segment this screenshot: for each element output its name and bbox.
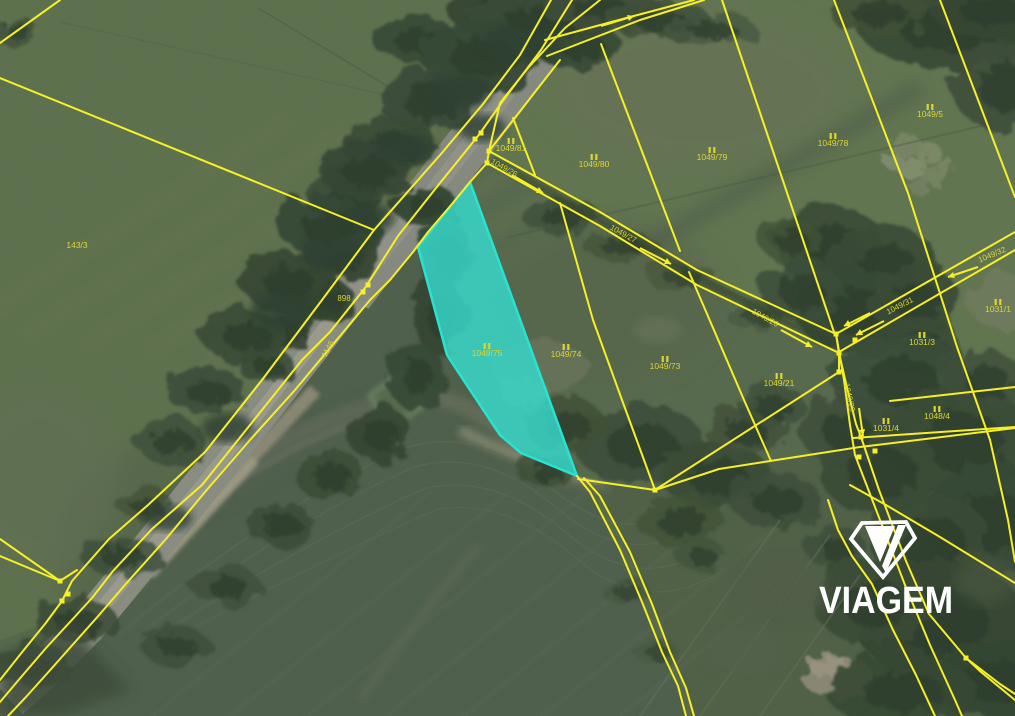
- svg-text:1049/81: 1049/81: [496, 143, 527, 153]
- svg-text:1031/3: 1031/3: [909, 337, 935, 347]
- svg-text:1049/78: 1049/78: [818, 138, 849, 148]
- svg-text:1049/79: 1049/79: [697, 152, 728, 162]
- svg-text:1049/21: 1049/21: [764, 378, 795, 388]
- svg-text:1049/5: 1049/5: [917, 109, 943, 119]
- svg-text:1049/75: 1049/75: [472, 348, 503, 358]
- svg-text:1048/4: 1048/4: [924, 411, 950, 421]
- svg-text:143/3: 143/3: [66, 240, 88, 250]
- svg-text:1049/73: 1049/73: [650, 361, 681, 371]
- svg-text:VIAGEM: VIAGEM: [819, 580, 953, 622]
- svg-text:898: 898: [337, 294, 351, 303]
- svg-text:1031/4: 1031/4: [873, 423, 899, 433]
- svg-text:1031/1: 1031/1: [985, 304, 1011, 314]
- svg-text:1049/74: 1049/74: [551, 349, 582, 359]
- svg-text:1049/80: 1049/80: [579, 159, 610, 169]
